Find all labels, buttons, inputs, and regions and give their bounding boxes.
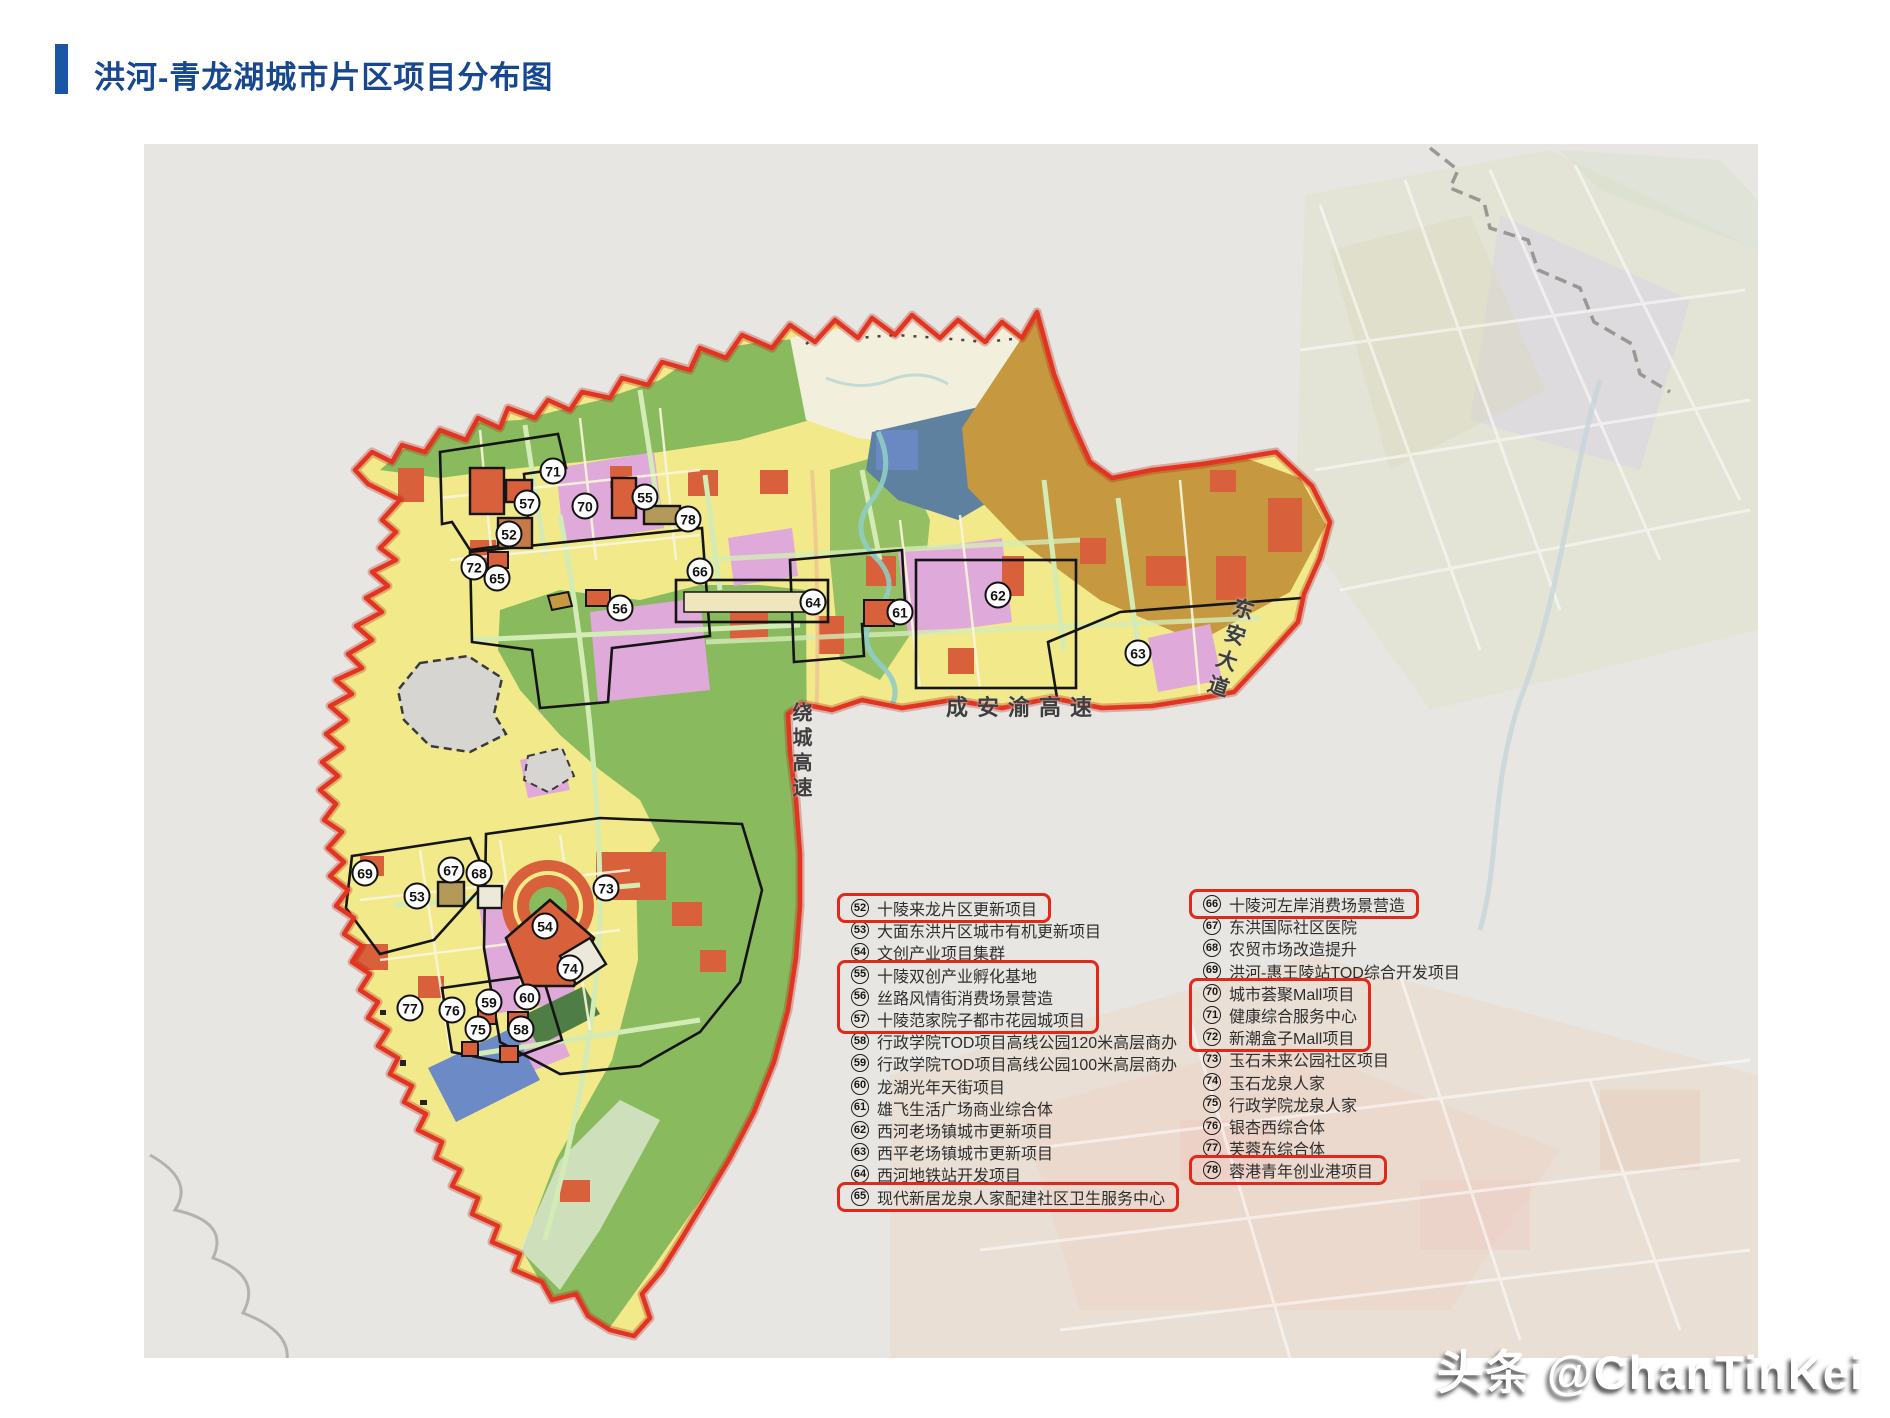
- watermark: 头条 @ChanTinKei: [1437, 1334, 1864, 1403]
- legend-item-label: 十陵双创产业孵化基地: [877, 963, 1037, 987]
- legend-item-55: 55十陵双创产业孵化基地: [851, 964, 1037, 986]
- map-marker-75[interactable]: 75: [465, 1016, 492, 1043]
- legend-item-56: 56丝路风情街消费场景营造: [851, 986, 1053, 1008]
- legend-item-label: 丝路风情街消费场景营造: [877, 985, 1053, 1009]
- legend-item-label: 银杏西综合体: [1229, 1114, 1325, 1138]
- legend-item-label: 行政学院龙泉人家: [1229, 1092, 1357, 1116]
- legend-item-73: 73玉石未来公园社区项目: [1203, 1048, 1389, 1070]
- legend-item-label: 现代新居龙泉人家配建社区卫生服务中心: [877, 1185, 1165, 1209]
- legend-item-70: 70城市荟聚Mall项目: [1203, 982, 1354, 1004]
- legend-item-number: 75: [1203, 1095, 1221, 1113]
- legend-item-number: 54: [851, 943, 869, 961]
- map-marker-66[interactable]: 66: [687, 558, 714, 585]
- legend-item-label: 健康综合服务中心: [1229, 1003, 1357, 1027]
- legend-item-number: 73: [1203, 1050, 1221, 1068]
- legend-item-61: 61雄飞生活广场商业综合体: [851, 1097, 1053, 1119]
- legend-item-number: 66: [1203, 895, 1221, 913]
- map-marker-57[interactable]: 57: [514, 490, 541, 517]
- legend-item-number: 63: [851, 1143, 869, 1161]
- legend-item-number: 76: [1203, 1117, 1221, 1135]
- legend-item-number: 67: [1203, 917, 1221, 935]
- legend-item-72: 72新潮盒子Mall项目: [1203, 1026, 1354, 1048]
- legend-item-78: 78蓉港青年创业港项目: [1203, 1159, 1373, 1181]
- legend-item-label: 农贸市场改造提升: [1229, 936, 1357, 960]
- map-marker-63[interactable]: 63: [1125, 640, 1152, 667]
- legend-item-75: 75行政学院龙泉人家: [1203, 1093, 1357, 1115]
- legend-item-number: 58: [851, 1032, 869, 1050]
- legend-item-label: 玉石未来公园社区项目: [1229, 1047, 1389, 1071]
- legend-item-71: 71健康综合服务中心: [1203, 1004, 1357, 1026]
- legend-item-label: 东洪国际社区医院: [1229, 914, 1357, 938]
- map-marker-74[interactable]: 74: [557, 955, 584, 982]
- legend-item-label: 龙湖光年天街项目: [877, 1074, 1005, 1098]
- map-marker-72[interactable]: 72: [461, 554, 488, 581]
- map-marker-68[interactable]: 68: [466, 860, 493, 887]
- legend-item-label: 行政学院TOD项目高线公园120米高层商办: [877, 1029, 1177, 1053]
- legend-item-label: 芙蓉东综合体: [1229, 1136, 1325, 1160]
- legend-item-74: 74玉石龙泉人家: [1203, 1071, 1325, 1093]
- legend-item-number: 68: [1203, 939, 1221, 957]
- legend-item-number: 77: [1203, 1139, 1221, 1157]
- legend-item-58: 58行政学院TOD项目高线公园120米高层商办: [851, 1030, 1177, 1052]
- legend-item-number: 64: [851, 1165, 869, 1183]
- legend-item-label: 十陵范家院子都市花园城项目: [877, 1007, 1085, 1031]
- map-marker-76[interactable]: 76: [439, 997, 466, 1024]
- legend-item-label: 玉石龙泉人家: [1229, 1070, 1325, 1094]
- map-marker-70[interactable]: 70: [572, 493, 599, 520]
- legend-item-number: 62: [851, 1121, 869, 1139]
- legend-item-label: 雄飞生活广场商业综合体: [877, 1096, 1053, 1120]
- legend-item-label: 西河老场镇城市更新项目: [877, 1118, 1053, 1142]
- road-label-chenganyu-expressway: 成安渝高速: [946, 690, 1101, 722]
- legend-item-65: 65现代新居龙泉人家配建社区卫生服务中心: [851, 1186, 1165, 1208]
- legend-item-label: 十陵河左岸消费场景营造: [1229, 892, 1405, 916]
- legend-item-label: 新潮盒子Mall项目: [1229, 1025, 1354, 1049]
- legend-item-54: 54文创产业项目集群: [851, 941, 1005, 963]
- legend-item-57: 57十陵范家院子都市花园城项目: [851, 1008, 1085, 1030]
- map-marker-71[interactable]: 71: [540, 458, 567, 485]
- legend-item-label: 十陵来龙片区更新项目: [877, 896, 1037, 920]
- legend-item-66: 66十陵河左岸消费场景营造: [1203, 893, 1405, 915]
- map-marker-60[interactable]: 60: [514, 984, 541, 1011]
- map-marker-78[interactable]: 78: [675, 506, 702, 533]
- legend-item-label: 蓉港青年创业港项目: [1229, 1158, 1373, 1182]
- map-marker-77[interactable]: 77: [397, 995, 424, 1022]
- legend-item-53: 53大面东洪片区城市有机更新项目: [851, 919, 1101, 941]
- legend-item-69: 69洪河-惠王陵站TOD综合开发项目: [1203, 960, 1460, 982]
- legend-item-number: 65: [851, 1188, 869, 1206]
- legend-item-68: 68农贸市场改造提升: [1203, 937, 1357, 959]
- legend-item-label: 行政学院TOD项目高线公园100米高层商办: [877, 1051, 1177, 1075]
- legend-item-52: 52十陵来龙片区更新项目: [851, 897, 1037, 919]
- legend-item-number: 57: [851, 1010, 869, 1028]
- legend-item-77: 77芙蓉东综合体: [1203, 1137, 1325, 1159]
- legend-item-number: 72: [1203, 1028, 1221, 1046]
- legend-item-76: 76银杏西综合体: [1203, 1115, 1325, 1137]
- map-marker-59[interactable]: 59: [476, 989, 503, 1016]
- map-marker-53[interactable]: 53: [404, 883, 431, 910]
- legend-item-60: 60龙湖光年天街项目: [851, 1075, 1005, 1097]
- legend-item-label: 城市荟聚Mall项目: [1229, 981, 1354, 1005]
- legend-item-63: 63西平老场镇城市更新项目: [851, 1141, 1053, 1163]
- page: 洪河-青龙湖城市片区项目分布图: [0, 0, 1890, 1418]
- legend-item-number: 69: [1203, 962, 1221, 980]
- legend-item-number: 53: [851, 921, 869, 939]
- legend-item-number: 60: [851, 1077, 869, 1095]
- legend-item-number: 78: [1203, 1161, 1221, 1179]
- legend-item-label: 洪河-惠王陵站TOD综合开发项目: [1229, 959, 1460, 983]
- legend-item-label: 西河地铁站开发项目: [877, 1162, 1021, 1186]
- map-marker-54[interactable]: 54: [532, 913, 559, 940]
- legend-item-67: 67东洪国际社区医院: [1203, 915, 1357, 937]
- legend-item-label: 大面东洪片区城市有机更新项目: [877, 918, 1101, 942]
- map-marker-61[interactable]: 61: [887, 599, 914, 626]
- map-marker-65[interactable]: 65: [484, 565, 511, 592]
- map-marker-56[interactable]: 56: [607, 595, 634, 622]
- legend-item-number: 71: [1203, 1006, 1221, 1024]
- title-accent-bar: [55, 44, 68, 94]
- legend-item-64: 64西河地铁站开发项目: [851, 1163, 1021, 1185]
- map-marker-73[interactable]: 73: [593, 875, 620, 902]
- map-marker-52[interactable]: 52: [496, 521, 523, 548]
- map-marker-64[interactable]: 64: [800, 589, 827, 616]
- legend-item-number: 56: [851, 988, 869, 1006]
- map-marker-62[interactable]: 62: [985, 582, 1012, 609]
- legend-item-62: 62西河老场镇城市更新项目: [851, 1119, 1053, 1141]
- legend-item-number: 52: [851, 899, 869, 917]
- map-marker-67[interactable]: 67: [438, 857, 465, 884]
- legend-item-number: 74: [1203, 1073, 1221, 1091]
- legend-item-number: 70: [1203, 984, 1221, 1002]
- legend-item-59: 59行政学院TOD项目高线公园100米高层商办: [851, 1052, 1177, 1074]
- legend-item-number: 55: [851, 966, 869, 984]
- road-label-raocheng-expressway: 绕城高速: [786, 702, 815, 802]
- map-marker-69[interactable]: 69: [352, 860, 379, 887]
- legend-item-label: 文创产业项目集群: [877, 940, 1005, 964]
- page-title: 洪河-青龙湖城市片区项目分布图: [94, 52, 553, 97]
- legend-item-number: 59: [851, 1054, 869, 1072]
- legend-item-number: 61: [851, 1099, 869, 1117]
- map-marker-55[interactable]: 55: [632, 484, 659, 511]
- legend-item-label: 西平老场镇城市更新项目: [877, 1140, 1053, 1164]
- map-marker-58[interactable]: 58: [508, 1016, 535, 1043]
